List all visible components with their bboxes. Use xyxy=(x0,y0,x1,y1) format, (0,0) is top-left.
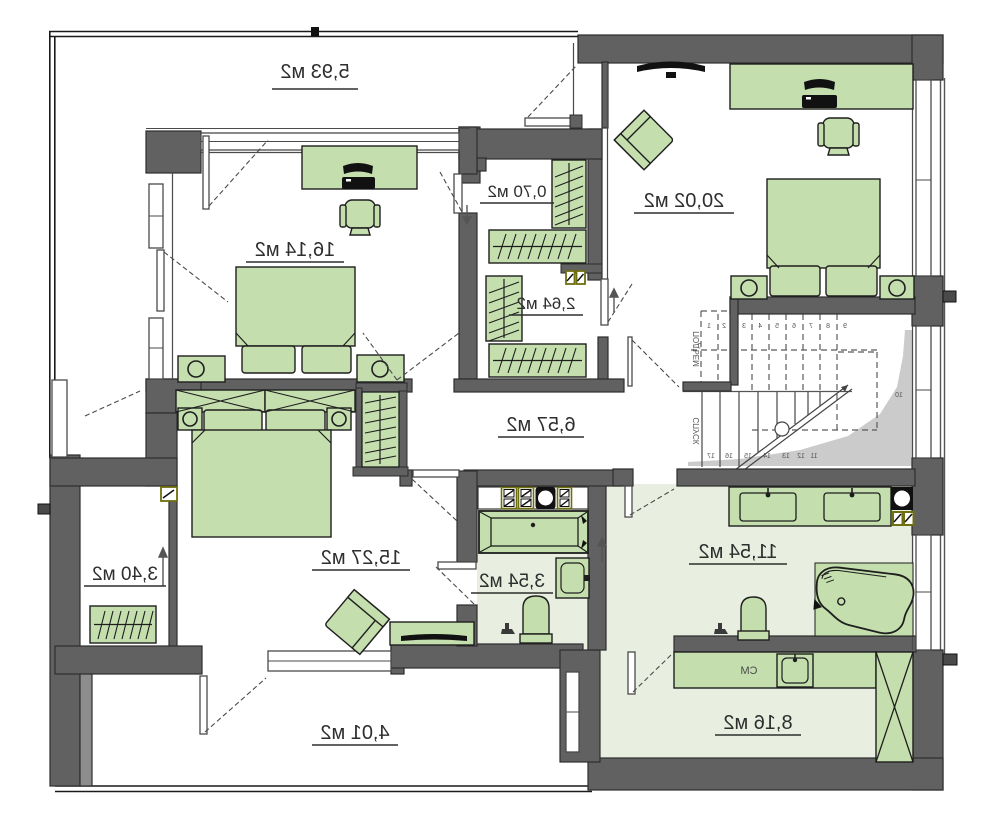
svg-text:16,14 м2: 16,14 м2 xyxy=(255,239,335,261)
svg-text:7: 7 xyxy=(809,323,813,330)
svg-text:11: 11 xyxy=(810,453,817,460)
svg-text:6: 6 xyxy=(792,323,796,330)
svg-text:11,54 м2: 11,54 м2 xyxy=(699,541,778,563)
svg-text:5,93 м2: 5,93 м2 xyxy=(280,61,349,83)
svg-text:4: 4 xyxy=(758,323,762,330)
svg-text:4,01 м2: 4,01 м2 xyxy=(320,722,389,744)
svg-text:14: 14 xyxy=(763,453,771,460)
svg-text:8,16 м2: 8,16 м2 xyxy=(723,712,792,734)
svg-text:3,40 м2: 3,40 м2 xyxy=(92,564,158,585)
svg-text:15: 15 xyxy=(744,453,752,460)
svg-text:17: 17 xyxy=(707,453,715,460)
svg-text:1: 1 xyxy=(707,323,711,330)
svg-text:2: 2 xyxy=(722,323,726,330)
svg-text:СПУСК: СПУСК xyxy=(692,417,701,444)
svg-text:3: 3 xyxy=(742,323,746,330)
svg-text:5: 5 xyxy=(775,323,779,330)
svg-text:15,27 м2: 15,27 м2 xyxy=(321,547,401,569)
svg-text:ПОДЪЕМ: ПОДЪЕМ xyxy=(692,331,701,367)
svg-text:СМ: СМ xyxy=(741,665,758,677)
svg-text:10: 10 xyxy=(895,392,903,399)
svg-text:12: 12 xyxy=(797,453,805,460)
svg-text:20,02 м2: 20,02 м2 xyxy=(644,190,724,212)
svg-text:16: 16 xyxy=(725,453,733,460)
svg-text:0,70 м2: 0,70 м2 xyxy=(488,182,547,201)
svg-text:13: 13 xyxy=(782,453,790,460)
svg-text:6,57 м2: 6,57 м2 xyxy=(506,414,575,436)
svg-text:2,64 м2: 2,64 м2 xyxy=(517,294,576,313)
svg-text:8: 8 xyxy=(826,323,830,330)
svg-text:9: 9 xyxy=(843,323,847,330)
svg-text:3,54 м2: 3,54 м2 xyxy=(479,571,545,592)
